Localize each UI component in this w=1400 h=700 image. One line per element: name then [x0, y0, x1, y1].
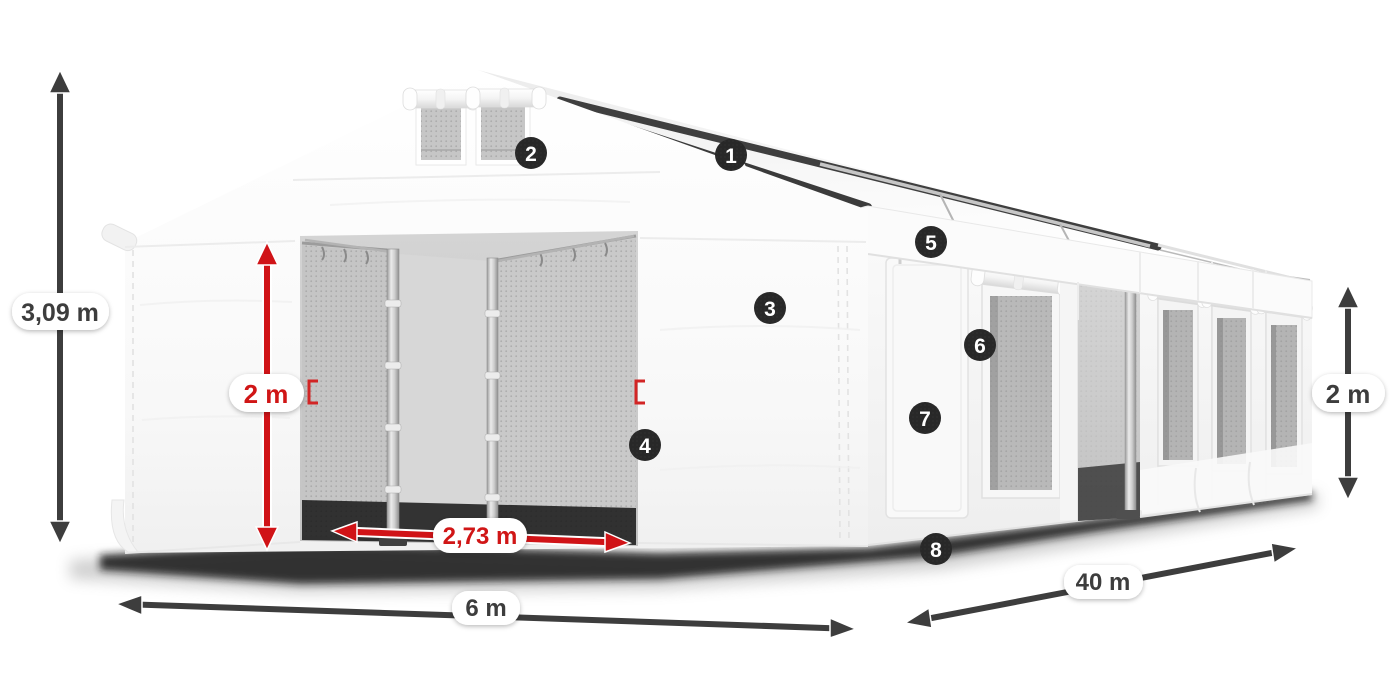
svg-text:8: 8 — [930, 539, 942, 562]
svg-text:4: 4 — [639, 435, 651, 458]
svg-text:7: 7 — [919, 408, 931, 431]
callout-marker-4[interactable]: 4 — [629, 429, 661, 461]
svg-text:40 m: 40 m — [1076, 569, 1131, 596]
side-window — [970, 264, 1078, 520]
callout-marker-3[interactable]: 3 — [754, 292, 786, 324]
interior-mesh-left — [302, 243, 387, 539]
svg-text:6: 6 — [974, 335, 986, 358]
interior-mesh-right — [498, 236, 636, 544]
side-door-panel — [880, 247, 975, 518]
svg-text:6 m: 6 m — [465, 595, 506, 622]
dimension-label-total-height: 3,09 m — [12, 293, 109, 330]
eave-cap — [99, 221, 139, 253]
diagram-canvas: 3,09 m 2 m 2,73 m 6 m 40 m 2 m 1 2 3 4 5 — [0, 0, 1400, 700]
svg-text:3: 3 — [764, 298, 776, 321]
svg-text:2 m: 2 m — [1326, 379, 1371, 409]
svg-text:1: 1 — [725, 145, 737, 168]
callout-marker-8[interactable]: 8 — [920, 533, 952, 565]
dimension-label-length: 40 m — [1064, 565, 1143, 599]
tent-dimensions-diagram: 3,09 m 2 m 2,73 m 6 m 40 m 2 m 1 2 3 4 5 — [0, 0, 1400, 700]
dimension-label-entrance-width: 2,73 m — [433, 518, 527, 553]
svg-text:3,09 m: 3,09 m — [21, 299, 99, 327]
svg-text:5: 5 — [925, 232, 937, 255]
frame-corner-post — [1125, 266, 1136, 516]
svg-text:2,73 m: 2,73 m — [443, 523, 518, 550]
dimension-label-side-height: 2 m — [1312, 374, 1385, 412]
svg-text:2: 2 — [525, 143, 537, 166]
vent-roller — [466, 87, 546, 109]
callout-marker-5[interactable]: 5 — [915, 226, 947, 258]
callout-marker-7[interactable]: 7 — [909, 402, 941, 434]
dimension-label-entrance-height: 2 m — [229, 374, 304, 412]
dimension-label-width: 6 m — [452, 591, 520, 625]
callout-marker-1[interactable]: 1 — [715, 139, 747, 171]
entrance-opening — [300, 231, 645, 548]
callout-marker-6[interactable]: 6 — [964, 329, 996, 361]
svg-text:2 m: 2 m — [244, 379, 289, 409]
callout-marker-2[interactable]: 2 — [515, 137, 547, 169]
